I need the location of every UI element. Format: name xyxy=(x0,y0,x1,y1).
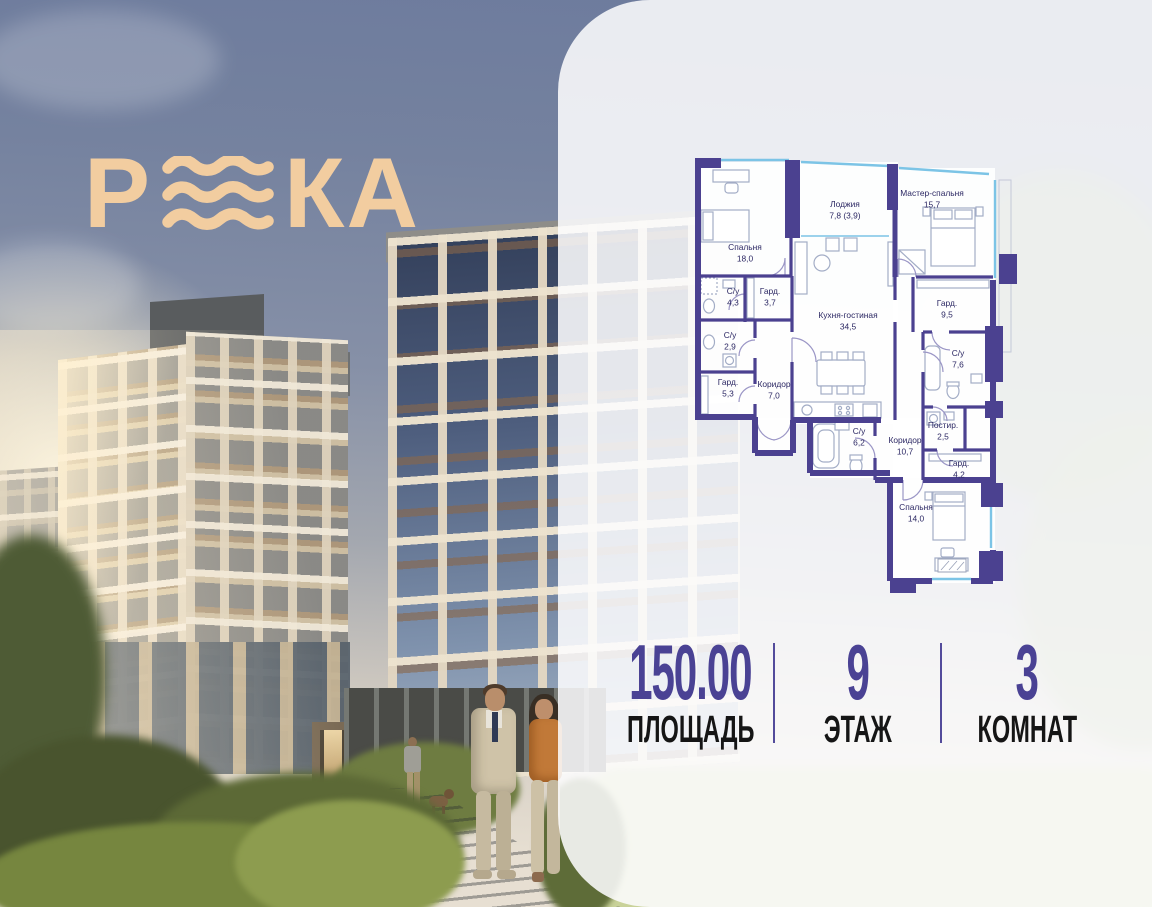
listing-card: Р КА xyxy=(0,0,1152,907)
room-label: С/у7,6 xyxy=(952,348,965,370)
logo-letter-p: Р xyxy=(84,153,152,233)
hatch-box xyxy=(938,559,966,572)
reka-logo: Р КА xyxy=(84,152,420,234)
rooms-label: КОМНАТ xyxy=(977,715,1077,745)
room-label: С/у6,2 xyxy=(853,426,866,448)
stats-bar: 150.00 ПЛОЩАДЬ 9 ЭТАЖ 3 КОМНАТ xyxy=(608,641,1112,745)
area-value: 150.00 xyxy=(629,641,751,703)
floor-plan: Спальня18,0Лоджия7,8 (3,9)Мастер-спальня… xyxy=(685,150,1025,620)
logo-letters-ka: КА xyxy=(284,153,420,233)
stat-floor: 9 ЭТАЖ xyxy=(775,641,940,745)
stat-area: 150.00 ПЛОЩАДЬ xyxy=(608,641,773,745)
waves-icon xyxy=(162,156,274,234)
stat-rooms: 3 КОМНАТ xyxy=(942,641,1112,745)
room-label: С/у4,3 xyxy=(727,286,740,308)
room-label: С/у2,9 xyxy=(724,330,737,352)
rooms-value: 3 xyxy=(1016,641,1038,703)
area-label: ПЛОЩАДЬ xyxy=(627,715,754,745)
floor-label: ЭТАЖ xyxy=(824,715,892,745)
room-label: Лоджия7,8 (3,9) xyxy=(829,199,860,221)
floor-value: 9 xyxy=(846,641,868,703)
